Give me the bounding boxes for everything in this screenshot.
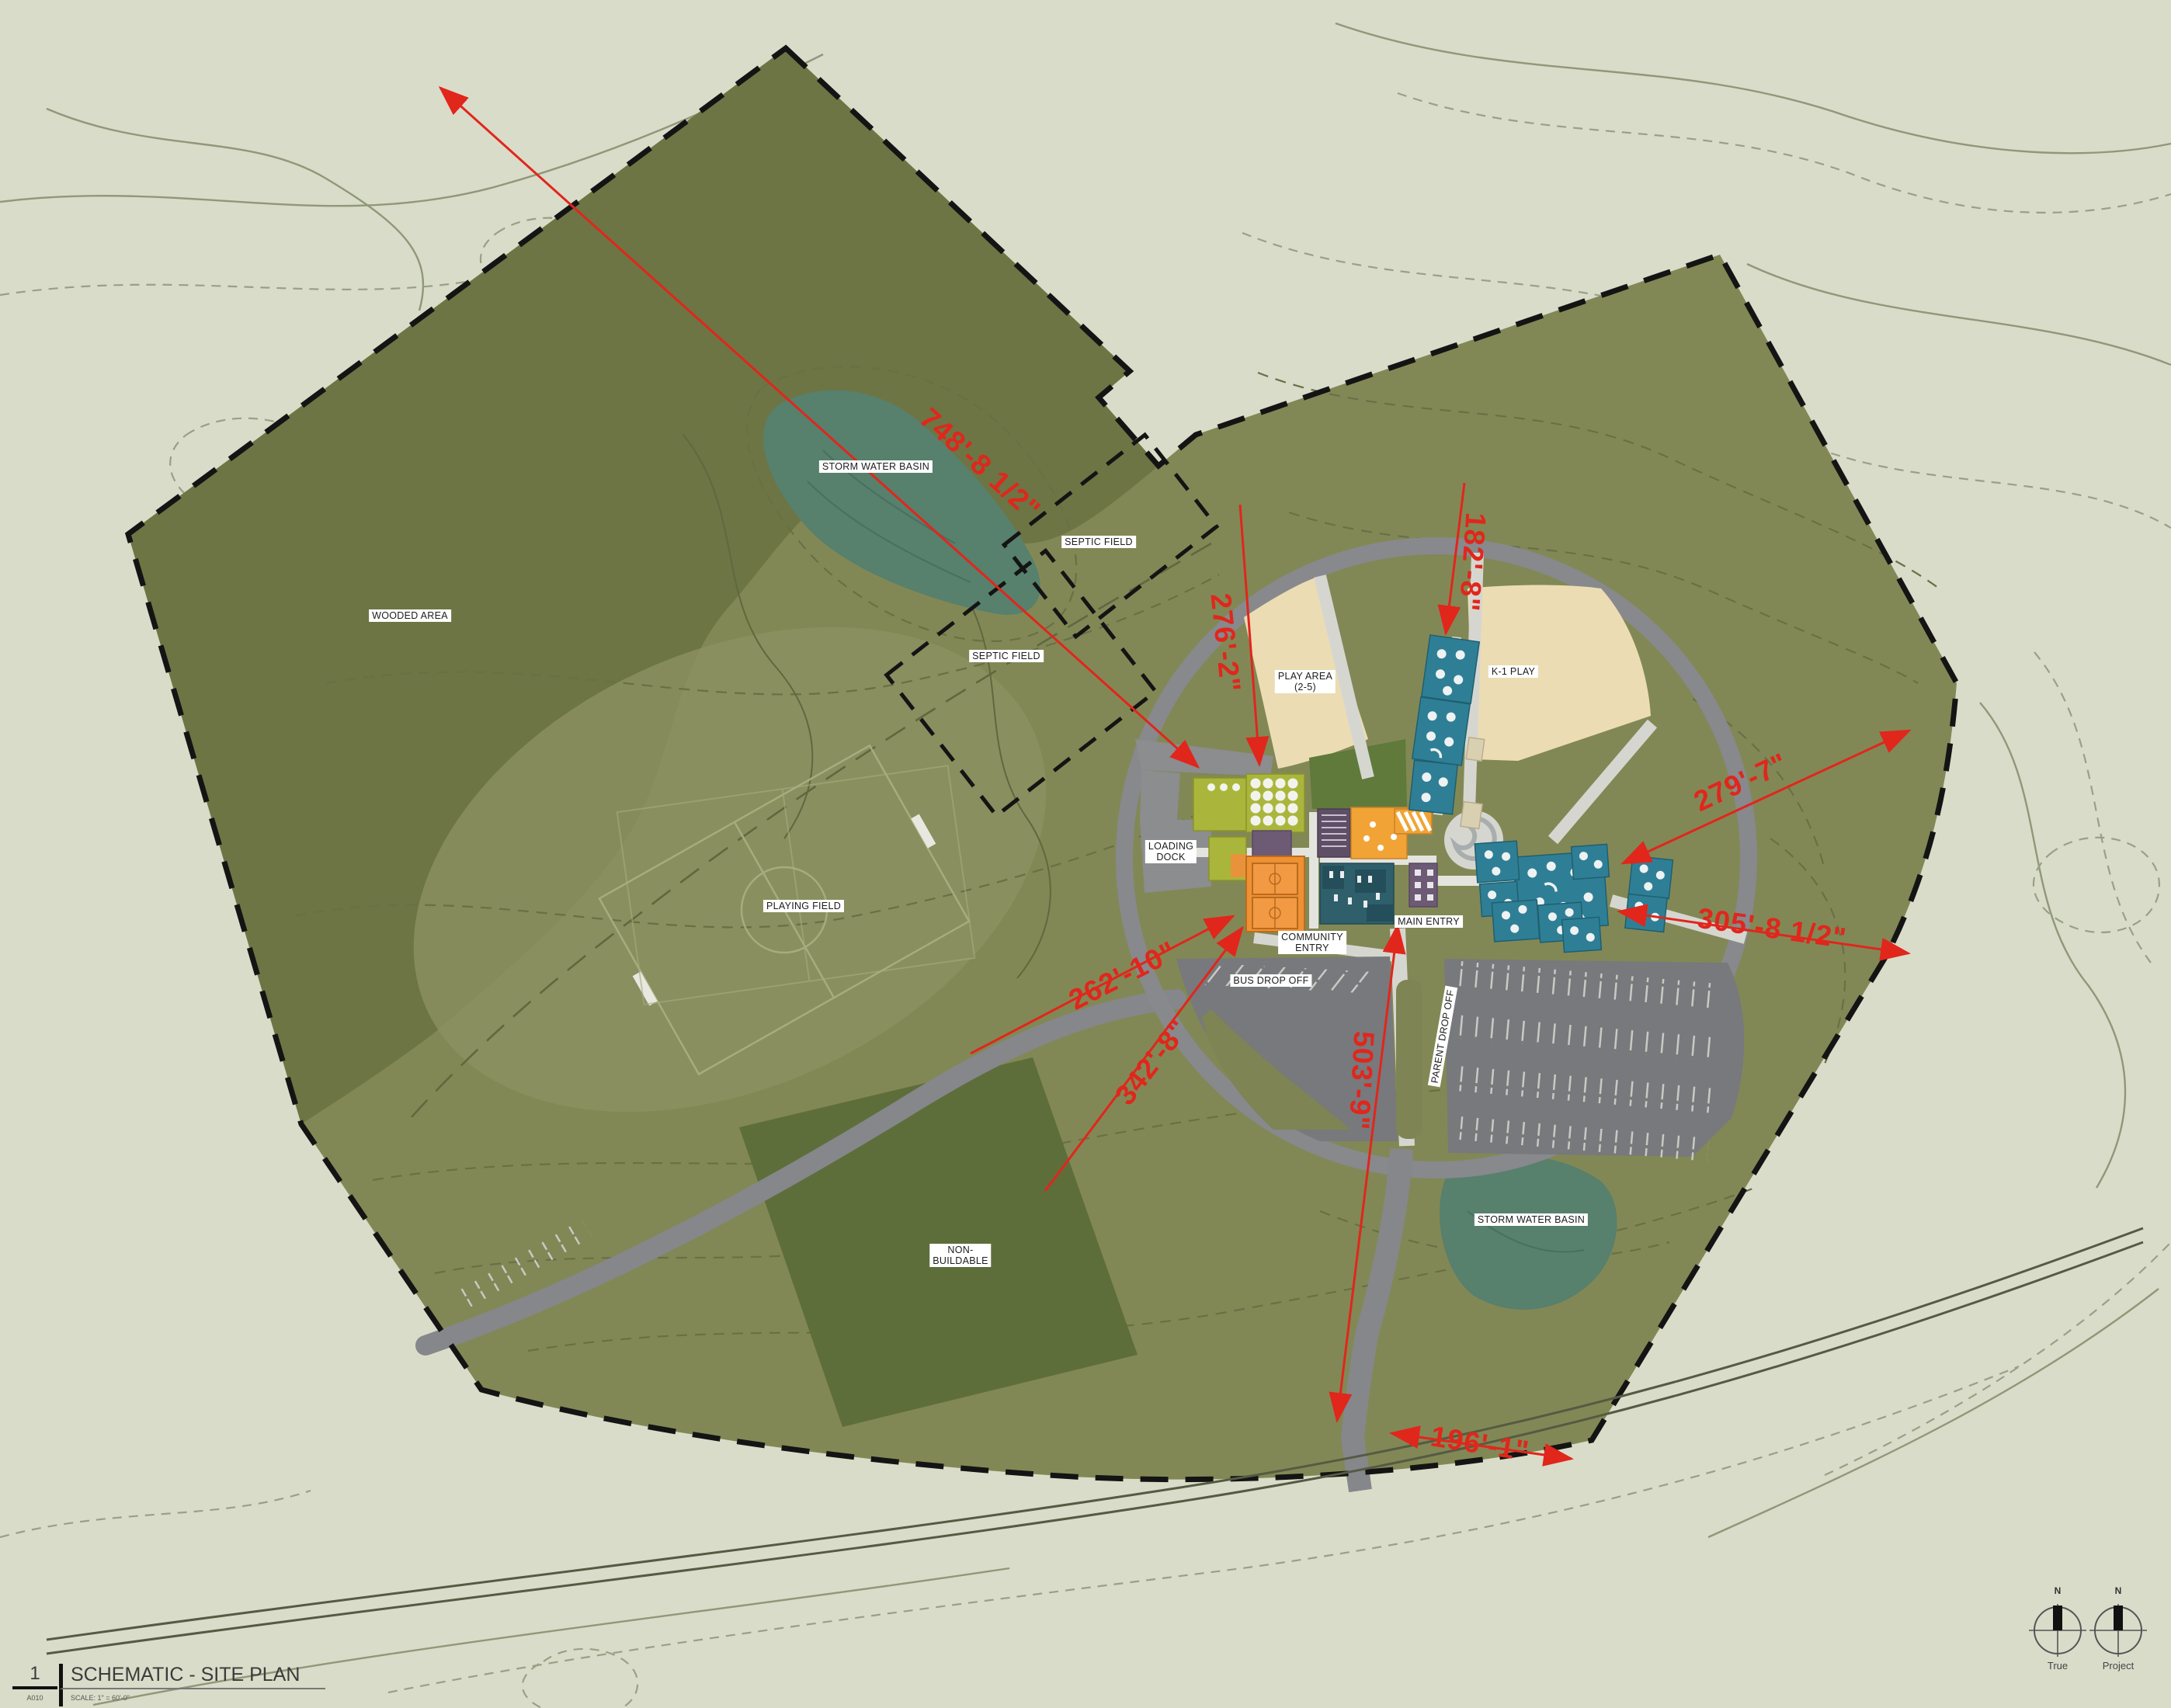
drawing-number: 1 (12, 1663, 57, 1689)
site-plan-drawing (0, 0, 2171, 1708)
project-north-n: N (2091, 1585, 2145, 1596)
true-north-icon (2029, 1604, 2086, 1657)
drawing-scale: SCALE: 1" = 60'-0" (59, 1689, 136, 1706)
drawing-title: SCHEMATIC - SITE PLAN (59, 1664, 325, 1689)
music-room-building (1252, 831, 1291, 857)
project-north-icon (2089, 1604, 2147, 1657)
title-block: 1 SCHEMATIC - SITE PLAN A010 SCALE: 1" =… (12, 1663, 509, 1706)
true-north-n: N (2030, 1585, 2085, 1596)
compass-roses: N N True Project (2019, 1585, 2171, 1686)
admin-entry-building (1320, 863, 1394, 924)
main-entry-building (1409, 863, 1437, 907)
gym-building (1246, 856, 1304, 932)
site-plan-sheet: STORM WATER BASINSEPTIC FIELDSEPTIC FIEL… (0, 0, 2171, 1708)
sheet-number: A010 (12, 1689, 57, 1706)
true-north-label: True (2030, 1660, 2085, 1672)
project-north-label: Project (2091, 1660, 2145, 1672)
auditorium-building (1318, 809, 1350, 857)
parent-drop-off-island (1396, 980, 1422, 1139)
